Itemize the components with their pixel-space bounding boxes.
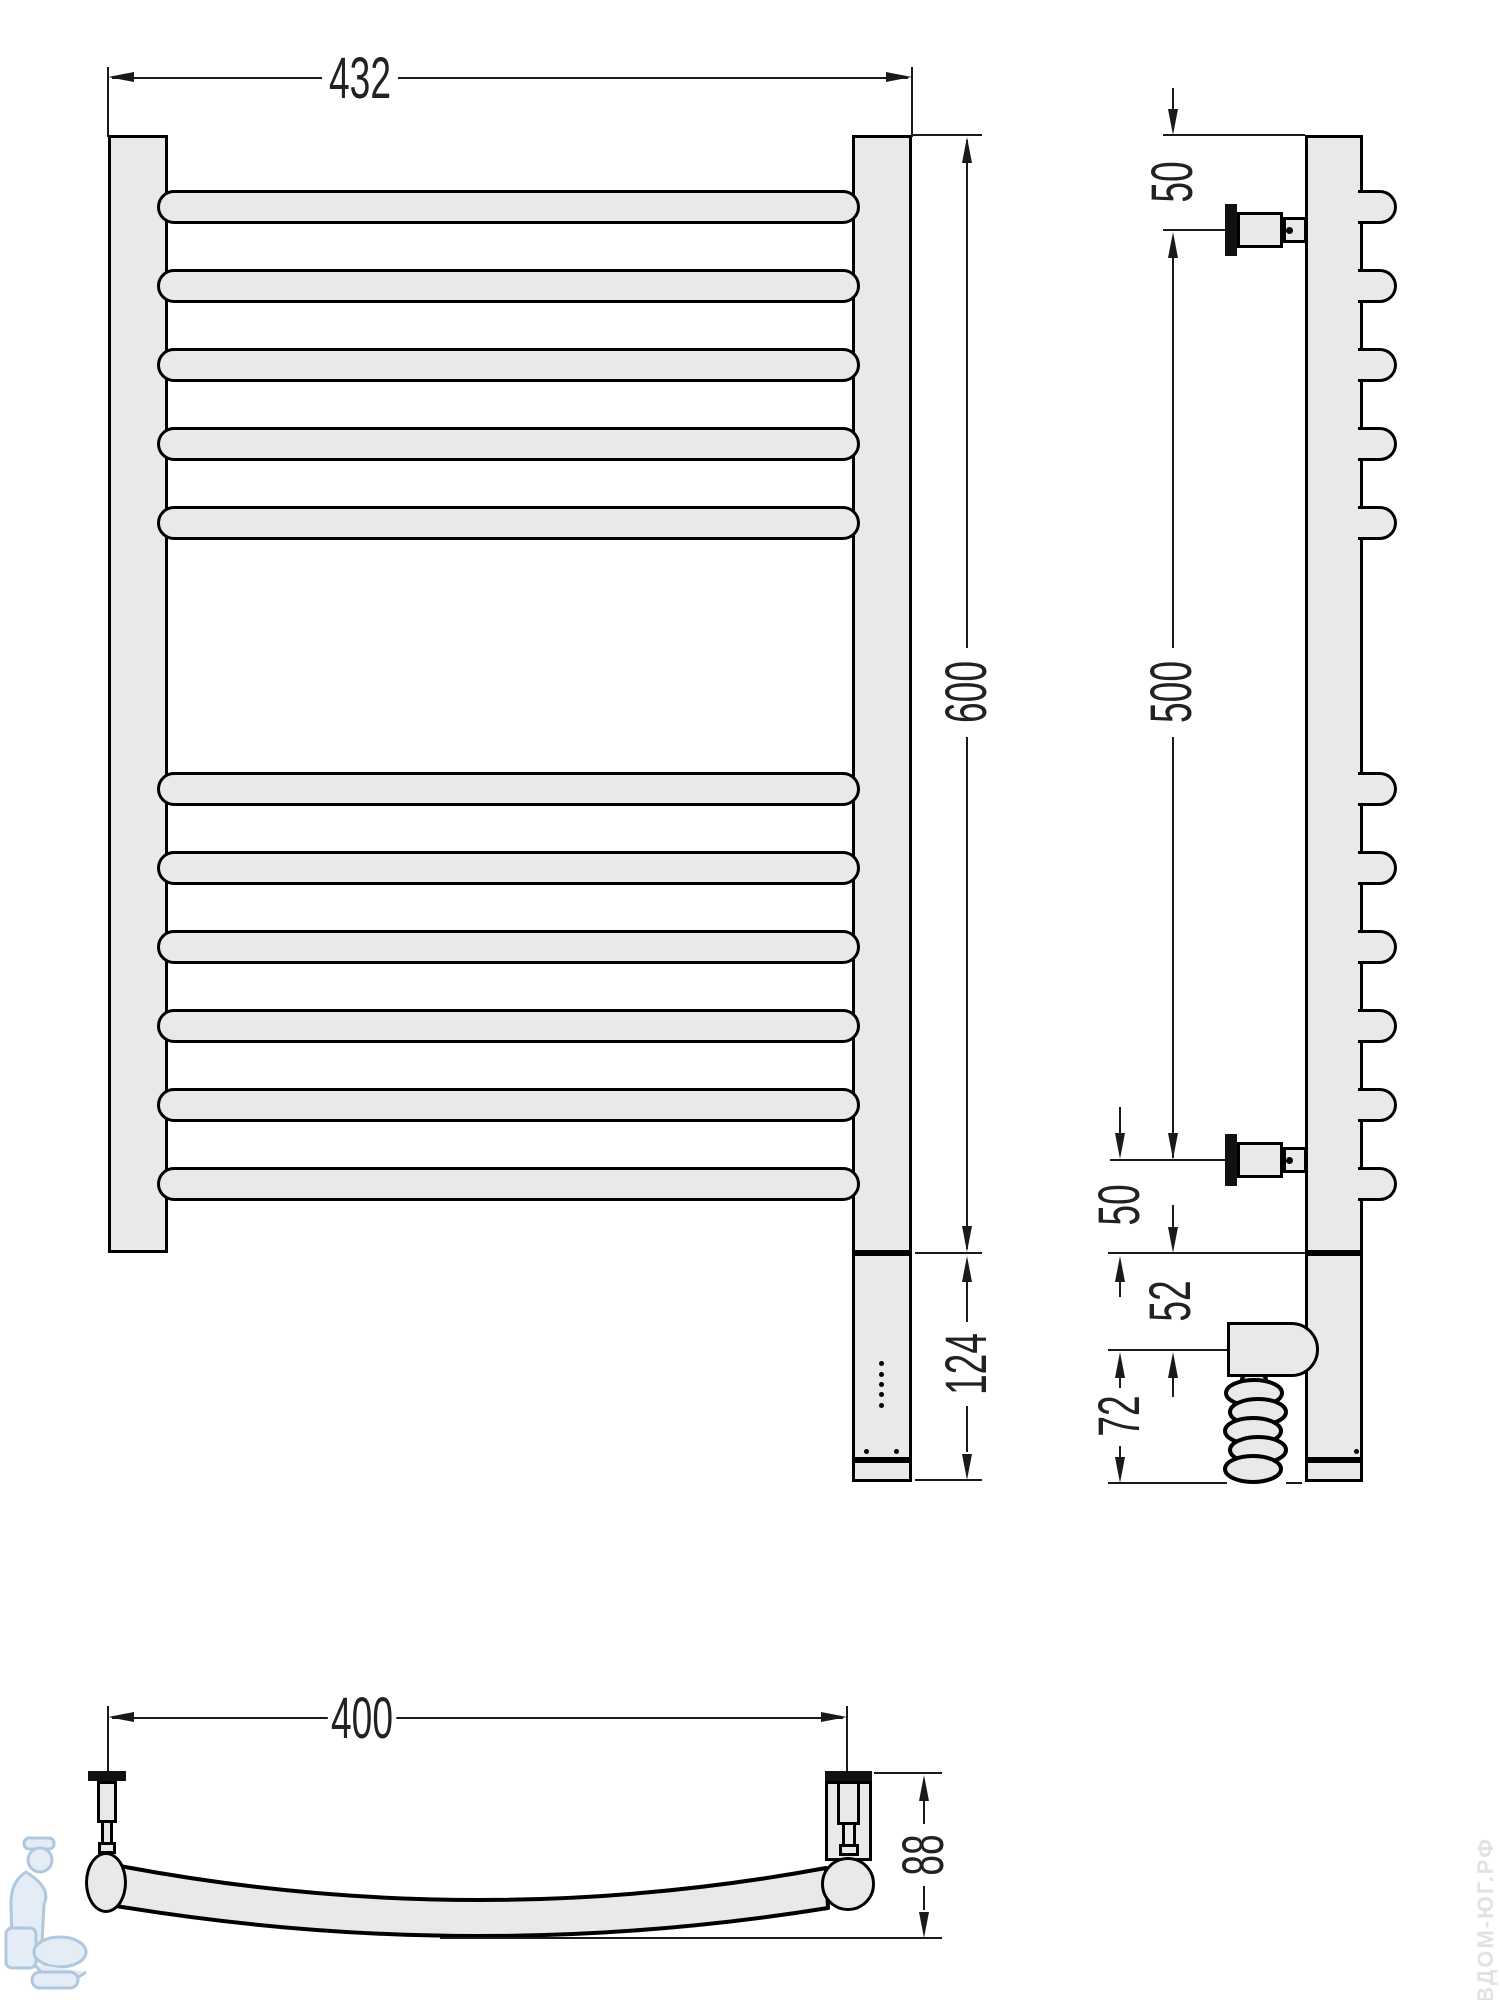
arrowhead-icon [1168, 1352, 1178, 1378]
rung-end-profile [1358, 348, 1397, 382]
arrowhead-icon [1115, 1352, 1125, 1378]
arrowhead-icon [962, 1454, 972, 1480]
rung [157, 851, 860, 885]
rung [157, 269, 860, 303]
side-post [1305, 135, 1363, 1253]
extension-line [1163, 229, 1225, 231]
extension-line [912, 134, 982, 136]
front-width-dimension: 432 [326, 50, 394, 108]
arrowhead-icon [886, 72, 912, 82]
bv-right-corner-ball [821, 1857, 875, 1911]
bv-right-bracket-cap [825, 1771, 872, 1781]
arrowhead-icon [962, 137, 972, 163]
extension-line [1110, 1159, 1225, 1161]
dimension-line [398, 77, 908, 79]
indicator-led [879, 1403, 884, 1408]
dimension-line [1172, 1205, 1174, 1229]
rung-end-profile [1358, 427, 1397, 461]
dimension-line [1172, 1378, 1174, 1397]
plumber-watermark-icon [6, 1838, 86, 1988]
side-bottom-offset-dimension: 50 [1091, 1181, 1149, 1229]
dimension-line [923, 1886, 925, 1910]
front-heater-end-cap [852, 1460, 912, 1482]
front-right-post [852, 135, 912, 1253]
cap-screw [1354, 1449, 1359, 1454]
arrowhead-icon [962, 1256, 972, 1282]
bv-left-bracket-piston [97, 1781, 117, 1823]
dimension-line [1172, 737, 1174, 1158]
front-left-post [108, 135, 168, 1253]
arrowhead-icon [821, 1712, 847, 1722]
rung-end-profile [1358, 930, 1397, 964]
side-element-offset-dimension: 52 [1142, 1277, 1200, 1325]
bv-right-bracket-piston [837, 1781, 860, 1825]
indicator-led [879, 1372, 884, 1377]
arrowhead-icon [1168, 232, 1178, 258]
side-top-offset-dimension: 50 [1144, 158, 1202, 206]
dimension-line [966, 140, 968, 648]
rung-end-profile [1358, 1088, 1397, 1122]
indicator-led [879, 1382, 884, 1387]
rung [157, 427, 860, 461]
extension-line [1108, 1349, 1227, 1351]
lower-bracket-body [1237, 1142, 1283, 1178]
arrowhead-icon [1168, 1133, 1178, 1159]
rung-end-profile [1358, 1009, 1397, 1043]
extension-line [1163, 134, 1305, 136]
extension-line [1108, 1482, 1227, 1484]
rung [157, 772, 860, 806]
rung-end-profile [1358, 190, 1397, 224]
side-element-end-dimension: 72 [1091, 1392, 1149, 1440]
curved-rail-profile [116, 1866, 828, 1936]
arrowhead-icon [919, 1912, 929, 1938]
site-watermark: ВДОМ-ЮГ.РФ [1473, 1837, 1499, 2000]
upper-bracket-body [1237, 212, 1283, 248]
bottom-depth-dimension: 88 [895, 1831, 953, 1879]
dimension-line [112, 77, 322, 79]
heating-element-kettle [1227, 1322, 1319, 1377]
indicator-led [879, 1361, 884, 1366]
rung-end-profile [1358, 772, 1397, 806]
front-height-dimension: 600 [938, 658, 996, 726]
upper-bracket-flange [1225, 204, 1237, 256]
bv-left-bracket-cap [88, 1771, 126, 1781]
rung-end-profile [1358, 269, 1397, 303]
upper-bracket-pin [1286, 227, 1293, 234]
rung [157, 190, 860, 224]
rung [157, 1167, 860, 1201]
dimension-line [112, 1717, 330, 1719]
arrowhead-icon [962, 1226, 972, 1252]
cap-screw [894, 1449, 899, 1454]
extension-line [874, 1772, 942, 1774]
lower-bracket-flange [1225, 1134, 1237, 1186]
bv-left-corner-ball [85, 1852, 127, 1913]
dimension-line [394, 1717, 843, 1719]
arrowhead-icon [1115, 1256, 1125, 1282]
indicator-led [879, 1392, 884, 1397]
extension-line [1286, 1482, 1302, 1484]
front-heater-dimension: 124 [938, 1330, 996, 1398]
lower-bracket-pin [1286, 1157, 1293, 1164]
rung-end-profile [1358, 851, 1397, 885]
extension-line [1108, 1252, 1305, 1254]
side-span-dimension: 500 [1143, 658, 1201, 726]
arrowhead-icon [1168, 1227, 1178, 1253]
bottom-span-dimension: 400 [328, 1690, 396, 1748]
front-heater-housing [852, 1253, 912, 1460]
arrowhead-icon [108, 1712, 134, 1722]
arrowhead-icon [919, 1775, 929, 1801]
technical-drawing: 432 600 124 50 500 52 50 72 400 [0, 0, 1500, 2000]
rung [157, 930, 860, 964]
dimension-line [1172, 88, 1174, 110]
rung-end-profile [1358, 1167, 1397, 1201]
arrowhead-icon [1115, 1457, 1125, 1483]
cap-screw [864, 1449, 869, 1454]
dimension-line [1119, 1107, 1121, 1136]
rung [157, 348, 860, 382]
coiled-cable-icon [1225, 1380, 1286, 1482]
rung [157, 506, 860, 540]
rung [157, 1088, 860, 1122]
rung [157, 1009, 860, 1043]
extension-line [915, 1252, 982, 1254]
arrowhead-icon [1115, 1133, 1125, 1159]
dimension-line [923, 1801, 925, 1824]
bv-right-bracket-flare [839, 1844, 859, 1856]
dimension-line [966, 737, 968, 1249]
side-heater-end-cap [1305, 1460, 1363, 1482]
dimension-line [1172, 258, 1174, 648]
extension-line [440, 1937, 942, 1939]
dimension-line [1119, 1378, 1121, 1388]
dimension-line [1119, 1281, 1121, 1297]
dimension-line [966, 1282, 968, 1322]
rung-end-profile [1358, 506, 1397, 540]
arrowhead-icon [1168, 109, 1178, 135]
dimension-line [966, 1406, 968, 1452]
arrowhead-icon [108, 72, 134, 82]
